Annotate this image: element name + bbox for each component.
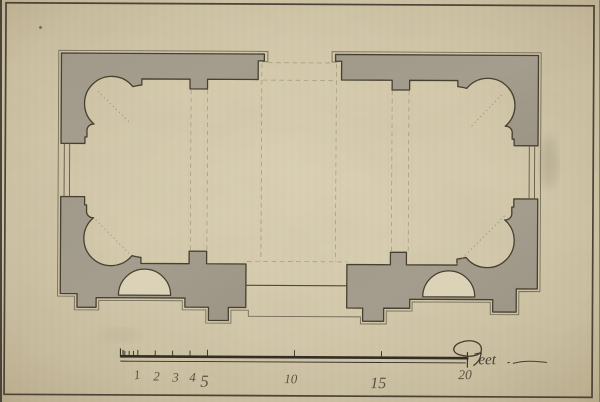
- svg-text:15: 15: [370, 375, 386, 392]
- svg-text:2: 2: [153, 368, 160, 383]
- svg-text:10: 10: [284, 371, 298, 386]
- svg-text:5: 5: [200, 372, 209, 391]
- svg-text:3: 3: [171, 370, 179, 385]
- svg-text:4: 4: [189, 370, 196, 385]
- svg-text:20: 20: [458, 367, 472, 382]
